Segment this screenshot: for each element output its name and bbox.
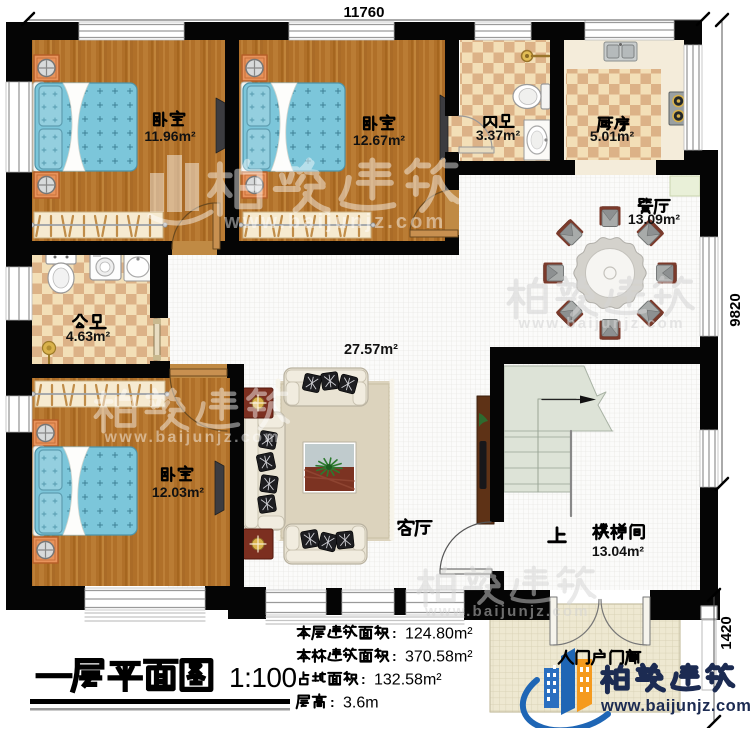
svg-text:5.01m²: 5.01m² xyxy=(590,128,635,144)
svg-text:13.09m²: 13.09m² xyxy=(628,211,680,227)
svg-text::: : xyxy=(392,648,397,664)
svg-text:3.37m²: 3.37m² xyxy=(476,127,521,143)
svg-text:13.04m²: 13.04m² xyxy=(592,543,644,559)
svg-text:11.96m²: 11.96m² xyxy=(144,128,196,144)
svg-text:www.baijunjz.com: www.baijunjz.com xyxy=(104,429,282,446)
svg-text:4.63m²: 4.63m² xyxy=(66,328,111,344)
svg-text:132.58m²: 132.58m² xyxy=(374,672,442,689)
svg-text::: : xyxy=(361,671,366,687)
svg-text:www.baijunjz.com: www.baijunjz.com xyxy=(517,315,684,332)
svg-text::: : xyxy=(330,694,335,710)
svg-text:11760: 11760 xyxy=(344,4,385,21)
svg-text:1:100: 1:100 xyxy=(229,662,297,693)
svg-text:1420: 1420 xyxy=(718,616,735,649)
svg-text:12.03m²: 12.03m² xyxy=(152,484,204,500)
svg-text:27.57m²: 27.57m² xyxy=(344,342,398,358)
svg-text:www.baijunjz.com: www.baijunjz.com xyxy=(223,211,446,233)
svg-text:9820: 9820 xyxy=(727,293,744,326)
svg-text:www.baijunjz.com: www.baijunjz.com xyxy=(424,603,590,620)
svg-text:124.80m²: 124.80m² xyxy=(405,626,473,643)
svg-text::: : xyxy=(392,625,397,641)
svg-text:370.58m²: 370.58m² xyxy=(405,649,473,666)
svg-text:3.6m: 3.6m xyxy=(343,695,379,712)
svg-text:www.baijunjz.com: www.baijunjz.com xyxy=(600,697,750,715)
svg-text:12.67m²: 12.67m² xyxy=(353,132,405,148)
